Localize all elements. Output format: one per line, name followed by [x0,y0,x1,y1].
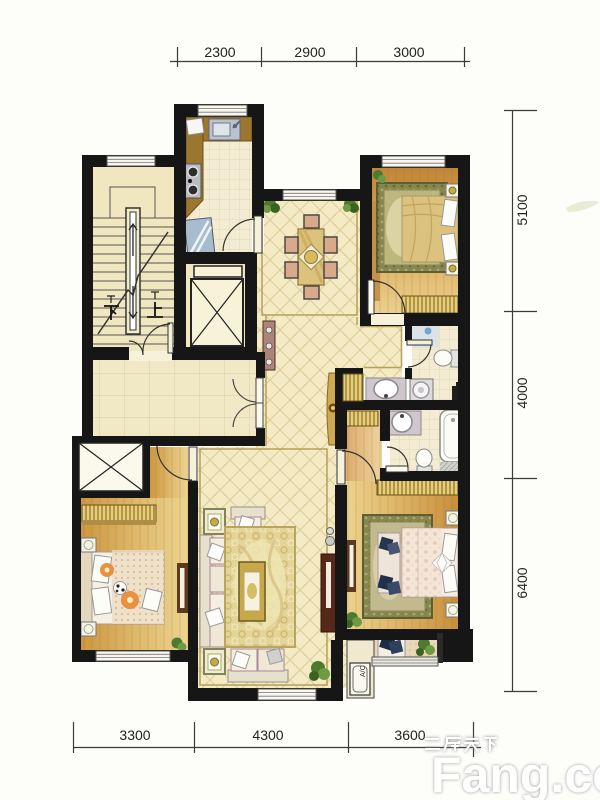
svg-text:3600: 3600 [394,727,425,743]
svg-text:3000: 3000 [393,44,424,60]
svg-text:6400: 6400 [514,567,530,598]
svg-text:4000: 4000 [514,377,530,408]
svg-text:5100: 5100 [514,194,530,225]
svg-text:2900: 2900 [294,44,325,60]
svg-text:4300: 4300 [252,727,283,743]
svg-text:2300: 2300 [204,44,235,60]
svg-text:A/C: A/C [360,665,367,677]
svg-text:3300: 3300 [119,727,150,743]
svg-text:Fang.com: Fang.com [431,747,600,800]
